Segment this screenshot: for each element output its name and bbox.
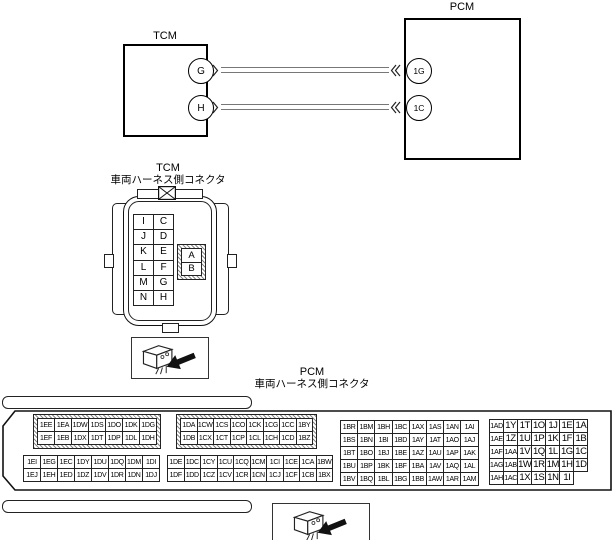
pin-cell: 1BT — [341, 447, 358, 460]
chevron-left-icon — [390, 64, 401, 77]
pin-cell: 1Y — [504, 420, 518, 433]
pin-cell: 1DR — [109, 469, 126, 482]
pcm-box — [404, 18, 521, 160]
pin-cell: 1AP — [444, 447, 461, 460]
pin-cell: 1J — [546, 420, 560, 433]
pin-cell: 1AF — [490, 446, 504, 459]
pin-cell: 1AA — [504, 446, 518, 459]
pin-cell: 1BE — [392, 447, 409, 460]
pin-cell: 1EG — [41, 456, 58, 469]
pin-cell: 1AN — [444, 421, 461, 434]
pin-cell: 1DP — [106, 432, 123, 445]
pin-cell: 1B — [574, 433, 588, 446]
pin-cell: 1DB — [181, 432, 198, 445]
pin-cell: L — [134, 260, 154, 275]
pcm-connector-subtitle: 車両ハーネス側コネクタ — [227, 378, 397, 390]
pin-cell: 1AT — [426, 434, 443, 447]
pin-cell: 1BZ — [296, 432, 313, 445]
pin-cell: 1P — [532, 433, 546, 446]
pin-cell: 1R — [532, 459, 546, 472]
pin-cell: 1ED — [58, 469, 75, 482]
pin-cell: 1CT — [214, 432, 231, 445]
pin-cell: 1AV — [426, 460, 443, 473]
x-box-icon — [158, 186, 176, 200]
pin-cell: 1CX — [197, 432, 214, 445]
pin-cell: 1DD — [184, 469, 201, 482]
pin-cell: 1DC — [184, 456, 201, 469]
tcm-connector-subtitle: 車両ハーネス側コネクタ — [83, 174, 253, 186]
pin-cell: 1DN — [126, 469, 143, 482]
tcm-view-direction-box — [131, 337, 209, 379]
pin-cell: F — [154, 260, 174, 275]
pin-cell: 1DO — [106, 419, 123, 432]
pin-cell: 1BM — [358, 421, 375, 434]
pcm-terminal-1g: 1G — [406, 58, 432, 84]
pin-cell: 1I — [560, 472, 574, 485]
pin-cell: 1DK — [123, 419, 140, 432]
pin-cell: 1CG — [263, 419, 280, 432]
pin-cell: 1X — [518, 472, 532, 485]
pin-cell: 1EF — [38, 432, 55, 445]
pin-cell: 1BV — [341, 473, 358, 486]
pin-cell: G — [154, 275, 174, 290]
wire-g-1g — [221, 67, 389, 73]
pin-cell: H — [154, 290, 174, 305]
pin-cell: 1AY — [409, 434, 426, 447]
pin-cell: 1DZ — [75, 469, 92, 482]
pin-cell: 1AD — [490, 420, 504, 433]
pin-cell: 1A — [574, 420, 588, 433]
pin-cell: 1BN — [358, 434, 375, 447]
pcm-box-label: PCM — [432, 1, 492, 13]
pin-cell: 1DA — [181, 419, 198, 432]
pin-cell: 1G — [560, 446, 574, 459]
pcm-pin-block-3: 1BR1BM1BH1BC1AX1AS1AN1AI1BS1BN1BI1BD1AY1… — [340, 420, 479, 486]
tcm-connector-right-lug — [227, 254, 237, 268]
pin-cell: 1AU — [426, 447, 443, 460]
pin-cell: 1DX — [72, 432, 89, 445]
pin-cell: 1CL — [247, 432, 264, 445]
pcm-pin-block-4: 1AD1Y1T1O1J1E1A1AE1Z1U1P1K1F1B1AF1AA1V1Q… — [489, 419, 588, 485]
pin-cell: 1BF — [392, 460, 409, 473]
pin-cell: 1Z — [504, 433, 518, 446]
pin-cell: 1BU — [341, 460, 358, 473]
pin-cell: 1AJ — [461, 434, 478, 447]
pin-cell: 1BQ — [358, 473, 375, 486]
pin-cell: 1S — [532, 472, 546, 485]
pin-cell: D — [154, 230, 174, 245]
pin-cell: 1BC — [392, 421, 409, 434]
pin-cell: 1N — [546, 472, 560, 485]
wiring-diagram-page: PCM TCM G H 1G 1C TCM 車両ハーネス側コネクタ ICJDKE… — [0, 0, 616, 540]
pin-cell: 1BW — [316, 456, 333, 469]
pin-cell: 1W — [518, 459, 532, 472]
pin-cell: 1BJ — [375, 447, 392, 460]
pin-cell: 1DM — [126, 456, 143, 469]
pin-cell: 1C — [574, 446, 588, 459]
pin-cell: 1U — [518, 433, 532, 446]
pin-cell: 1K — [546, 433, 560, 446]
pin-cell: 1BR — [341, 421, 358, 434]
pin-cell: 1CD — [280, 432, 297, 445]
pin-cell: 1EJ — [24, 469, 41, 482]
pin-cell: 1BL — [375, 473, 392, 486]
pin-cell: 1DW — [72, 419, 89, 432]
connector-view-arrow-icon — [134, 341, 206, 375]
pin-cell: 1AZ — [409, 447, 426, 460]
pin-cell: I — [134, 215, 154, 230]
pin-cell: 1DS — [89, 419, 106, 432]
pin-cell: M — [134, 275, 154, 290]
pin-cell: 1AX — [409, 421, 426, 434]
pin-cell: 1CY — [201, 456, 218, 469]
pin-cell: 1CQ — [234, 456, 251, 469]
pin-cell: 1EB — [55, 432, 72, 445]
pin-cell: 1EA — [55, 419, 72, 432]
pin-cell: 1AR — [444, 473, 461, 486]
pin-cell: 1BP — [358, 460, 375, 473]
pin-cell: 1BX — [316, 469, 333, 482]
pin-cell: 1CV — [217, 469, 234, 482]
pin-cell: 1AC — [504, 472, 518, 485]
pin-cell: 1DL — [123, 432, 140, 445]
pin-cell: 1F — [560, 433, 574, 446]
pin-cell: 1AL — [461, 460, 478, 473]
pin-cell: 1T — [518, 420, 532, 433]
pin-cell: B — [182, 262, 202, 276]
pcm-pin-block-1-bottom: 1EI1EG1EC1DY1DU1DQ1DM1DI1EJ1EH1ED1DZ1DV1… — [23, 455, 160, 482]
pin-cell: A — [182, 249, 202, 263]
pin-cell: 1CO — [230, 419, 247, 432]
pin-cell: 1BS — [341, 434, 358, 447]
pin-cell: 1H — [560, 459, 574, 472]
pin-cell: 1CU — [217, 456, 234, 469]
connector-view-arrow-icon — [285, 507, 357, 540]
pin-cell: 1AH — [490, 472, 504, 485]
pin-cell: 1CP — [230, 432, 247, 445]
pin-cell: 1DY — [75, 456, 92, 469]
tcm-connector-bottom-tab — [162, 323, 179, 333]
pin-cell: 1BI — [375, 434, 392, 447]
pin-cell: 1BK — [375, 460, 392, 473]
pin-cell: 1BG — [392, 473, 409, 486]
pin-cell: 1CE — [283, 456, 300, 469]
pin-cell: N — [134, 290, 154, 305]
pin-cell: 1CK — [247, 419, 264, 432]
pin-cell: J — [134, 230, 154, 245]
tcm-connector-title: TCM — [108, 162, 228, 174]
pin-cell: 1AE — [490, 433, 504, 446]
pin-cell: 1CA — [300, 456, 317, 469]
pcm-terminal-1c: 1C — [406, 95, 432, 121]
pin-cell: 1EI — [24, 456, 41, 469]
pin-cell: 1CI — [267, 456, 284, 469]
pin-cell: 1CR — [234, 469, 251, 482]
pin-cell: 1AK — [461, 447, 478, 460]
pin-cell: 1DG — [140, 419, 157, 432]
pin-cell: 1DI — [143, 456, 160, 469]
pcm-pin-block-2-bottom: 1DE1DC1CY1CU1CQ1CM1CI1CE1CA1BW1DF1DD1CZ1… — [167, 455, 333, 482]
pin-cell: 1EC — [58, 456, 75, 469]
pin-cell: 1DE — [168, 456, 185, 469]
tcm-connector-left-lug — [104, 254, 114, 268]
pin-cell: 1CH — [263, 432, 280, 445]
pin-cell: 1V — [518, 446, 532, 459]
pin-cell: 1O — [532, 420, 546, 433]
pin-cell: 1DF — [168, 469, 185, 482]
pin-cell: 1CZ — [201, 469, 218, 482]
tcm-terminal-h: H — [188, 95, 214, 121]
pin-cell: 1DQ — [109, 456, 126, 469]
pin-cell: 1CM — [250, 456, 267, 469]
pin-cell: K — [134, 245, 154, 260]
pin-cell: 1D — [574, 459, 588, 472]
pin-cell: 1DJ — [143, 469, 160, 482]
pin-cell: 1BO — [358, 447, 375, 460]
tcm-ab-pin-grid: AB — [177, 244, 206, 280]
pcm-pin-block-1-top: 1EE1EA1DW1DS1DO1DK1DG1EF1EB1DX1DT1DP1DL1… — [33, 414, 161, 449]
pin-cell: 1Q — [532, 446, 546, 459]
pin-cell: 1L — [546, 446, 560, 459]
pin-cell: 1CW — [197, 419, 214, 432]
pin-cell: 1AG — [490, 459, 504, 472]
pin-cell: 1CB — [300, 469, 317, 482]
pcm-pin-block-2-top: 1DA1CW1CS1CO1CK1CG1CC1BY1DB1CX1CT1CP1CL1… — [176, 414, 317, 449]
pin-cell: 1DH — [140, 432, 157, 445]
pin-cell: 1EE — [38, 419, 55, 432]
chevron-left-icon — [390, 101, 401, 114]
pin-cell: 1AB — [504, 459, 518, 472]
pin-cell: 1BD — [392, 434, 409, 447]
pin-cell: 1CS — [214, 419, 231, 432]
pin-cell: E — [154, 245, 174, 260]
pin-cell: 1DU — [92, 456, 109, 469]
wire-h-1c — [221, 104, 389, 110]
pin-cell: 1CN — [250, 469, 267, 482]
pcm-connector-bottom-rail — [2, 500, 252, 513]
tcm-terminal-g: G — [188, 58, 214, 84]
tcm-pin-grid: ICJDKELFMGNH — [133, 214, 174, 306]
pin-cell: 1CF — [283, 469, 300, 482]
pcm-connector-top-rail — [2, 396, 252, 409]
tcm-box-label: TCM — [135, 30, 195, 42]
pin-cell: 1BH — [375, 421, 392, 434]
pcm-connector-title: PCM — [262, 366, 362, 378]
pin-cell: 1BB — [409, 473, 426, 486]
pcm-view-direction-box — [272, 503, 370, 540]
pin-cell: 1CJ — [267, 469, 284, 482]
pin-cell: 1EH — [41, 469, 58, 482]
pin-cell: 1AO — [444, 434, 461, 447]
pin-cell: 1BY — [296, 419, 313, 432]
pin-cell: C — [154, 215, 174, 230]
pin-cell: 1AM — [461, 473, 478, 486]
pin-cell: 1CC — [280, 419, 297, 432]
pin-cell: 1AQ — [444, 460, 461, 473]
pin-cell: 1AW — [426, 473, 443, 486]
pin-cell: 1AS — [426, 421, 443, 434]
pin-cell: 1BA — [409, 460, 426, 473]
pin-cell: 1DV — [92, 469, 109, 482]
pin-cell: 1E — [560, 420, 574, 433]
pin-cell: 1DT — [89, 432, 106, 445]
pin-cell: 1M — [546, 459, 560, 472]
pin-cell: 1AI — [461, 421, 478, 434]
